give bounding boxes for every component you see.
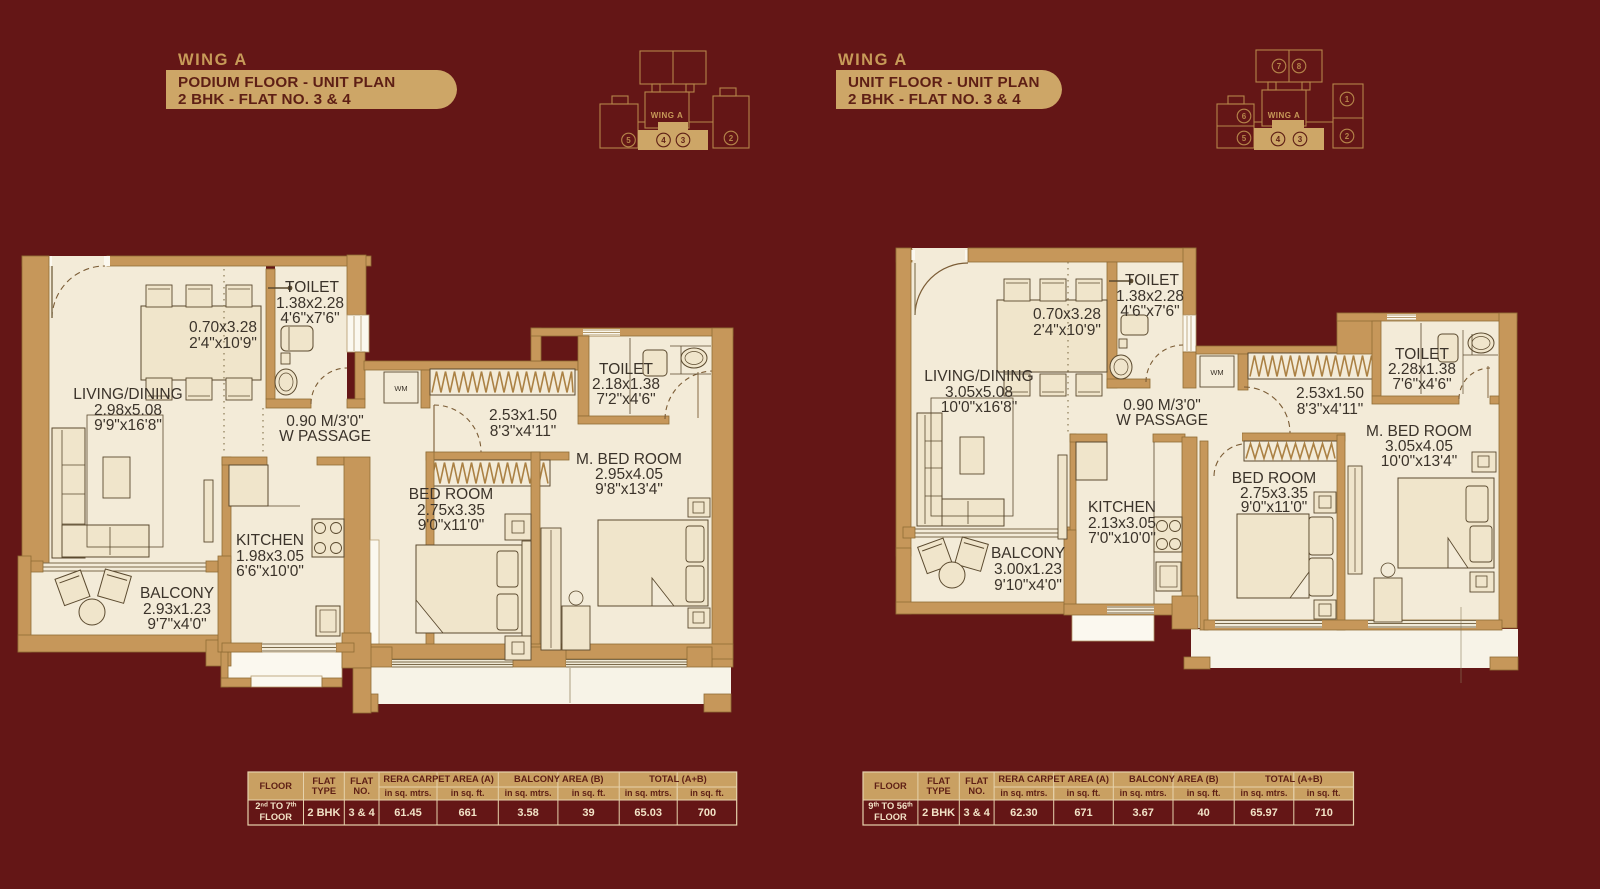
svg-text:5: 5: [626, 136, 631, 145]
svg-text:TOILET: TOILET: [285, 279, 340, 296]
svg-text:WM: WM: [1210, 368, 1223, 377]
svg-text:2.53x1.50: 2.53x1.50: [1296, 385, 1364, 402]
svg-text:2 BHK - FLAT NO. 3 & 4: 2 BHK - FLAT NO. 3 & 4: [848, 91, 1021, 108]
svg-text:2 BHK - FLAT NO. 3 & 4: 2 BHK - FLAT NO. 3 & 4: [178, 91, 351, 108]
svg-text:4'6"x7'6": 4'6"x7'6": [280, 310, 339, 327]
svg-text:RERA CARPET AREA (A): RERA CARPET AREA (A): [998, 774, 1109, 784]
svg-text:BALCONY AREA (B): BALCONY AREA (B): [514, 774, 604, 784]
svg-text:9'0"x11'0": 9'0"x11'0": [1241, 499, 1308, 516]
svg-text:2'4"x10'9": 2'4"x10'9": [1033, 322, 1101, 339]
svg-text:KITCHEN: KITCHEN: [1088, 499, 1156, 516]
svg-text:39: 39: [582, 807, 594, 819]
svg-text:0.70x3.28: 0.70x3.28: [1033, 306, 1101, 323]
svg-text:8: 8: [1297, 62, 1302, 71]
svg-text:9'10"x4'0": 9'10"x4'0": [994, 577, 1062, 594]
svg-text:BED ROOM: BED ROOM: [409, 486, 493, 503]
svg-text:in sq. mtrs.: in sq. mtrs.: [1241, 788, 1288, 798]
svg-text:8'3"x4'11": 8'3"x4'11": [1297, 401, 1364, 418]
svg-text:700: 700: [698, 807, 716, 819]
svg-text:FLAT: FLAT: [965, 776, 988, 786]
svg-text:3: 3: [681, 136, 686, 145]
svg-text:WING A: WING A: [838, 51, 908, 69]
svg-text:FLOOR: FLOOR: [874, 812, 907, 822]
svg-text:2'4"x10'9": 2'4"x10'9": [189, 335, 257, 352]
svg-text:2 BHK: 2 BHK: [307, 807, 340, 819]
svg-text:9'7"x4'0": 9'7"x4'0": [147, 616, 206, 633]
svg-text:3 & 4: 3 & 4: [964, 807, 991, 819]
svg-text:KITCHEN: KITCHEN: [236, 532, 304, 549]
svg-text:62.30: 62.30: [1010, 807, 1038, 819]
svg-text:BALCONY: BALCONY: [991, 545, 1065, 562]
svg-text:671: 671: [1074, 807, 1092, 819]
svg-text:LIVING/DINING: LIVING/DINING: [924, 368, 1033, 385]
svg-text:in sq. mtrs.: in sq. mtrs.: [505, 788, 552, 798]
svg-text:2.53x1.50: 2.53x1.50: [489, 407, 557, 424]
svg-text:UNIT FLOOR - UNIT PLAN: UNIT FLOOR - UNIT PLAN: [848, 74, 1040, 91]
svg-text:2 BHK: 2 BHK: [922, 807, 955, 819]
svg-text:3.67: 3.67: [1132, 807, 1153, 819]
svg-text:40: 40: [1197, 807, 1209, 819]
svg-text:FLAT: FLAT: [312, 776, 335, 786]
svg-text:7'0"x10'0": 7'0"x10'0": [1088, 530, 1156, 547]
svg-text:9'9"x16'8": 9'9"x16'8": [94, 417, 162, 434]
svg-text:in sq. ft.: in sq. ft.: [1187, 788, 1221, 798]
svg-text:7'2"x4'6": 7'2"x4'6": [596, 391, 655, 408]
svg-text:WING A: WING A: [1268, 111, 1300, 120]
svg-text:661: 661: [458, 807, 476, 819]
svg-text:in sq. mtrs.: in sq. mtrs.: [1120, 788, 1167, 798]
svg-text:7: 7: [1277, 62, 1282, 71]
svg-text:in sq. ft.: in sq. ft.: [1307, 788, 1341, 798]
svg-text:in sq. ft.: in sq. ft.: [690, 788, 724, 798]
svg-text:1: 1: [1345, 95, 1350, 104]
svg-text:BALCONY: BALCONY: [140, 585, 214, 602]
svg-text:PODIUM FLOOR - UNIT PLAN: PODIUM FLOOR - UNIT PLAN: [178, 74, 395, 91]
svg-text:9'8"x13'4": 9'8"x13'4": [595, 481, 663, 498]
svg-text:61.45: 61.45: [394, 807, 422, 819]
svg-text:4: 4: [1276, 135, 1281, 144]
svg-text:710: 710: [1314, 807, 1332, 819]
svg-text:5: 5: [1242, 134, 1247, 143]
svg-text:in sq. mtrs.: in sq. mtrs.: [385, 788, 432, 798]
svg-text:10'0"x16'8": 10'0"x16'8": [941, 399, 1017, 416]
svg-text:in sq. ft.: in sq. ft.: [572, 788, 606, 798]
svg-text:WM: WM: [394, 384, 407, 393]
svg-text:LIVING/DINING: LIVING/DINING: [73, 386, 182, 403]
svg-text:in sq. ft.: in sq. ft.: [1067, 788, 1101, 798]
svg-text:TOTAL (A+B): TOTAL (A+B): [649, 774, 707, 784]
svg-text:3 & 4: 3 & 4: [349, 807, 376, 819]
svg-text:WING A: WING A: [651, 111, 683, 120]
svg-text:FLOOR: FLOOR: [259, 812, 292, 822]
svg-text:2: 2: [1345, 132, 1350, 141]
svg-text:65.03: 65.03: [634, 807, 662, 819]
svg-text:8'3"x4'11": 8'3"x4'11": [490, 423, 557, 440]
svg-text:FLAT: FLAT: [350, 776, 373, 786]
svg-text:3: 3: [1298, 135, 1303, 144]
svg-text:NO.: NO.: [968, 786, 985, 796]
svg-text:4: 4: [661, 136, 666, 145]
svg-text:10'0"x13'4": 10'0"x13'4": [1381, 453, 1457, 470]
svg-text:in sq. mtrs.: in sq. mtrs.: [1000, 788, 1047, 798]
svg-text:6'6"x10'0": 6'6"x10'0": [236, 563, 304, 580]
svg-text:6: 6: [1242, 112, 1247, 121]
svg-text:TYPE: TYPE: [312, 786, 336, 796]
svg-text:NO.: NO.: [353, 786, 370, 796]
svg-text:0.70x3.28: 0.70x3.28: [189, 319, 257, 336]
svg-text:TYPE: TYPE: [926, 786, 950, 796]
svg-text:FLAT: FLAT: [927, 776, 950, 786]
svg-text:3.58: 3.58: [517, 807, 538, 819]
svg-text:7'6"x4'6": 7'6"x4'6": [1392, 376, 1451, 393]
svg-text:FLOOR: FLOOR: [259, 781, 292, 791]
svg-text:in sq. mtrs.: in sq. mtrs.: [625, 788, 672, 798]
svg-text:WING A: WING A: [178, 51, 248, 69]
svg-text:TOILET: TOILET: [1125, 272, 1180, 289]
svg-text:in sq. ft.: in sq. ft.: [451, 788, 485, 798]
svg-text:2: 2: [729, 134, 734, 143]
svg-text:W PASSAGE: W PASSAGE: [279, 428, 371, 445]
svg-text:3.00x1.23: 3.00x1.23: [994, 561, 1062, 578]
svg-text:4'6"x7'6": 4'6"x7'6": [1120, 303, 1179, 320]
svg-text:BALCONY AREA (B): BALCONY AREA (B): [1129, 774, 1219, 784]
svg-text:RERA CARPET AREA (A): RERA CARPET AREA (A): [383, 774, 494, 784]
svg-text:W PASSAGE: W PASSAGE: [1116, 412, 1208, 429]
svg-text:TOTAL (A+B): TOTAL (A+B): [1265, 774, 1323, 784]
svg-text:65.97: 65.97: [1250, 807, 1278, 819]
svg-text:FLOOR: FLOOR: [874, 781, 907, 791]
svg-text:9'0"x11'0": 9'0"x11'0": [418, 517, 485, 534]
svg-text:9ᵗʰ TO 56ᵗʰ: 9ᵗʰ TO 56ᵗʰ: [868, 801, 913, 811]
svg-text:2ⁿᵈ TO 7ᵗʰ: 2ⁿᵈ TO 7ᵗʰ: [255, 801, 297, 811]
